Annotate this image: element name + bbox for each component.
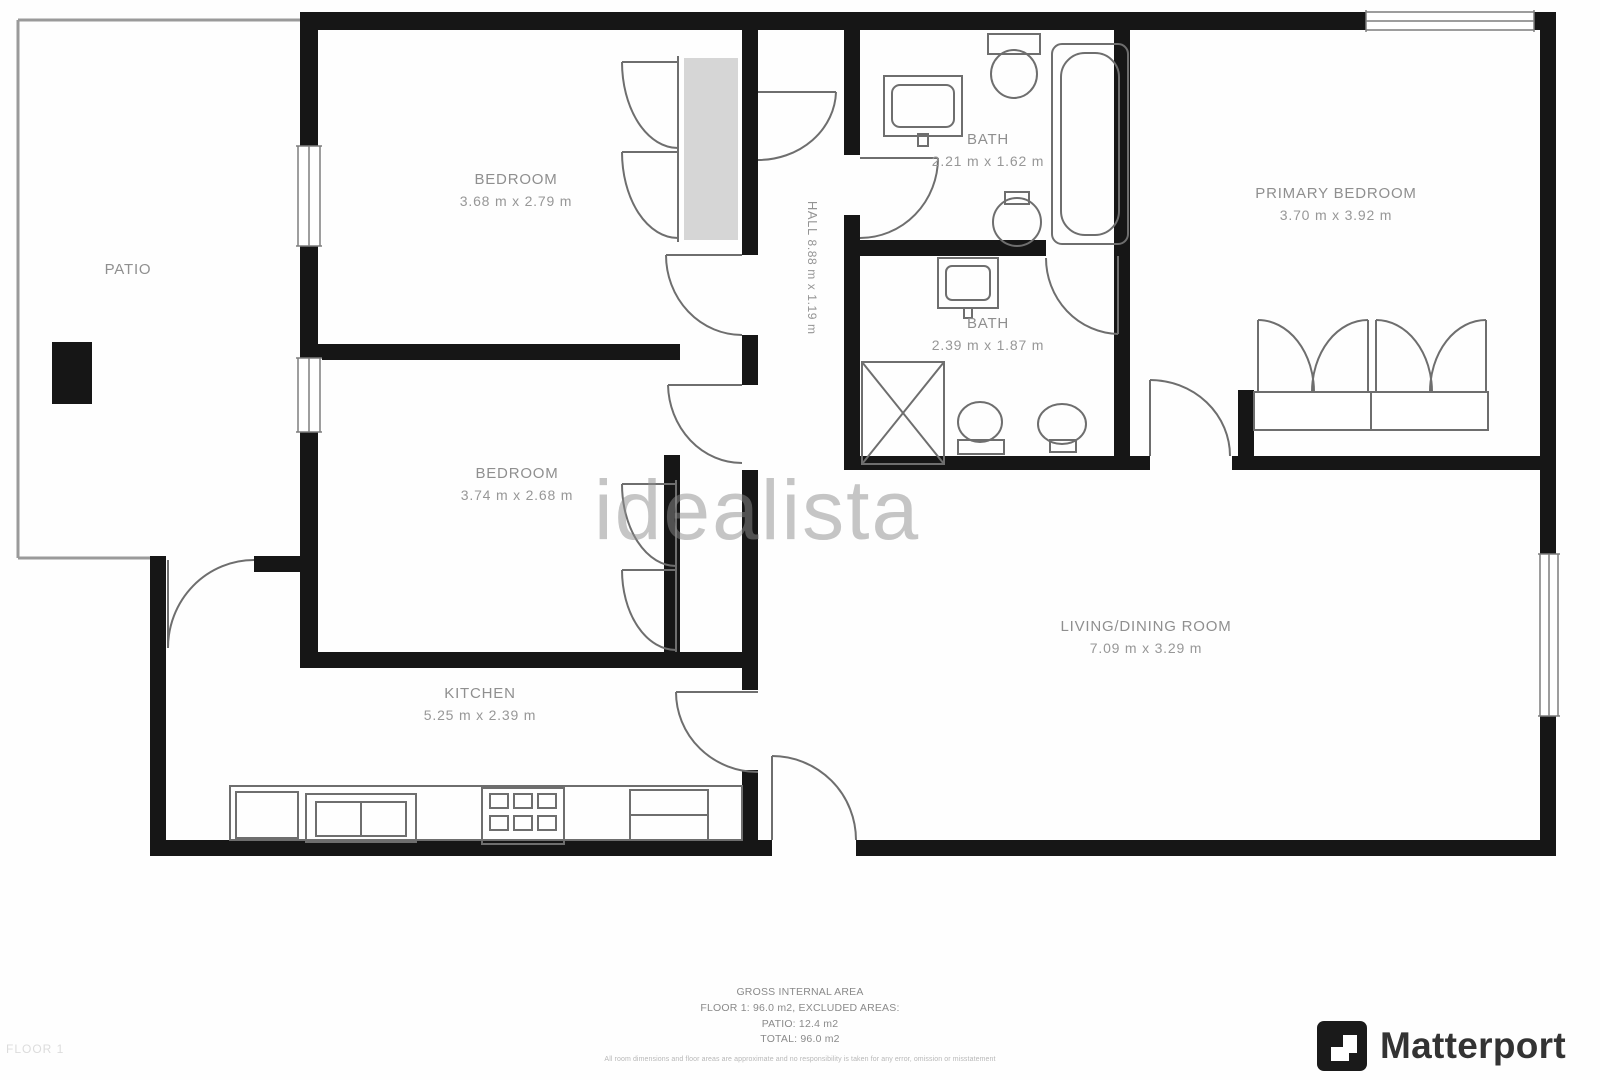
door-entrance	[772, 756, 856, 840]
door-primary-bedroom	[1150, 380, 1230, 456]
area-summary-line: PATIO: 12.4 m2	[604, 1017, 995, 1033]
door-bedroom1	[666, 255, 742, 335]
window-bedroom2-patio	[296, 358, 322, 432]
door-bedroom2	[668, 385, 742, 463]
appliance	[236, 792, 298, 838]
patio-boundary	[18, 20, 300, 558]
door-hall-closet	[758, 92, 836, 160]
room-label-bedroom2: BEDROOM 3.74 m x 2.68 m	[461, 462, 573, 507]
room-label-bath2: BATH 2.39 m x 1.87 m	[932, 312, 1044, 357]
floorplan-page: PATIO BEDROOM 3.68 m x 2.79 m BATH 2.21 …	[0, 0, 1600, 1080]
toilet-bowl	[991, 50, 1037, 98]
room-label-bath1: BATH 2.21 m x 1.62 m	[932, 128, 1044, 173]
room-label-kitchen: KITCHEN 5.25 m x 2.39 m	[424, 682, 536, 727]
door-patio	[168, 560, 254, 648]
watermark: idealista	[594, 462, 920, 559]
room-label-hall: HALL 8.88 m x 1.19 m	[802, 198, 822, 338]
stove	[482, 788, 564, 844]
window-living-room	[1538, 554, 1560, 716]
window-primary-bedroom	[1366, 10, 1534, 32]
area-summary: GROSS INTERNAL AREA FLOOR 1: 96.0 m2, EX…	[604, 985, 995, 1066]
closet-shelf-bedroom1	[684, 58, 738, 240]
bidet	[1038, 404, 1086, 444]
window-bedroom1-patio	[296, 146, 322, 246]
kitchen-fixtures	[230, 786, 742, 844]
disclaimer-text: All room dimensions and floor areas are …	[604, 1055, 995, 1066]
area-summary-line: GROSS INTERNAL AREA	[604, 985, 995, 1001]
matterport-wordmark: Matterport	[1380, 1025, 1566, 1067]
floor-tag: FLOOR 1	[6, 1042, 64, 1056]
room-label-primary-bedroom: PRIMARY BEDROOM 3.70 m x 3.92 m	[1255, 182, 1416, 227]
door-kitchen	[676, 692, 758, 772]
matterport-logo: Matterport	[1316, 1020, 1566, 1072]
toilet-bowl	[958, 402, 1002, 442]
door-bath1	[860, 158, 938, 238]
door-bath2	[1046, 258, 1118, 334]
room-label-patio: PATIO	[105, 258, 152, 281]
matterport-icon	[1316, 1020, 1368, 1072]
room-label-living-dining: LIVING/DINING ROOM 7.09 m x 3.29 m	[1060, 615, 1231, 660]
walls	[52, 12, 1556, 856]
area-summary-line: TOTAL: 96.0 m2	[604, 1032, 995, 1048]
room-label-bedroom1: BEDROOM 3.68 m x 2.79 m	[460, 168, 572, 213]
closet-primary-bedroom	[1254, 320, 1488, 430]
area-summary-line: FLOOR 1: 96.0 m2, EXCLUDED AREAS:	[604, 1001, 995, 1017]
